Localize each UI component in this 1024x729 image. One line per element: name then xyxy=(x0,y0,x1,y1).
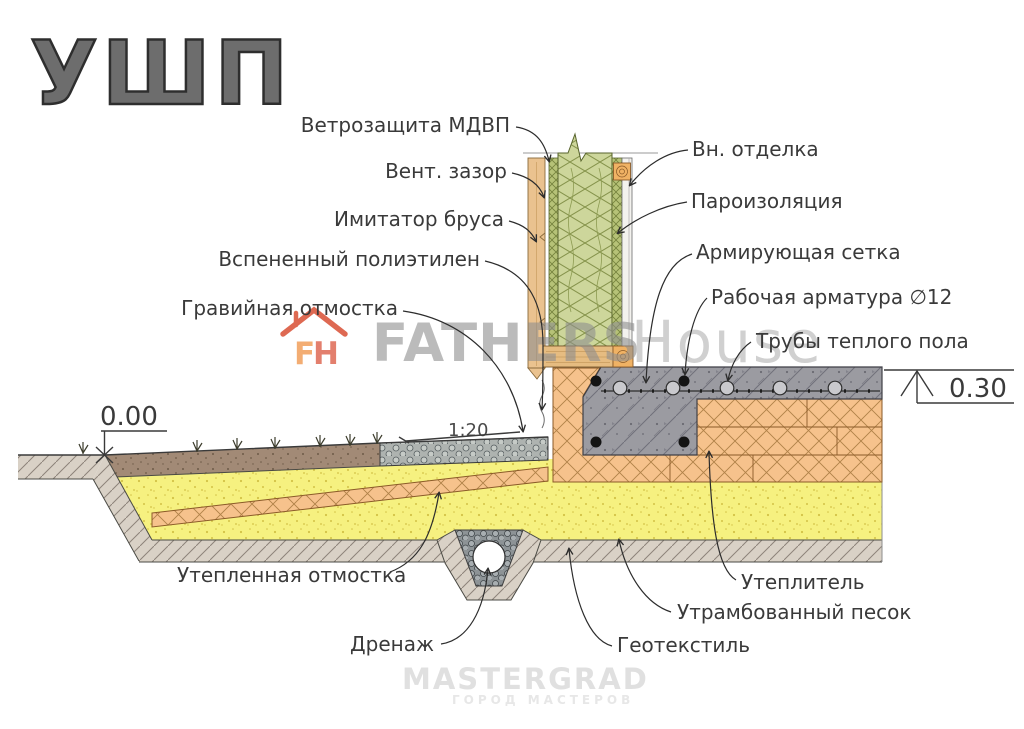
watermark-mastergrad: MASTERGRAD ГОРОД МАСТЕРОВ xyxy=(402,662,649,707)
label-compacted-sand: Утрамбованный песок xyxy=(677,600,911,624)
label-vapor-barrier: Пароизоляция xyxy=(691,189,843,213)
rebar-dot xyxy=(591,376,602,387)
floor-level-value: 0.30 xyxy=(949,374,1007,404)
label-insulated-apron: Утепленная отмостка xyxy=(177,563,406,587)
heating-pipe xyxy=(613,381,627,395)
label-reinforcing-mesh: Армирующая сетка xyxy=(696,240,901,264)
rebar-dot xyxy=(679,437,690,448)
ushp-foundation-diagram: УШП xyxy=(0,0,1024,729)
label-drainage: Дренаж xyxy=(350,632,434,656)
page-title: УШП xyxy=(30,22,292,125)
logo-letter-f: F xyxy=(294,336,315,372)
label-gravel-apron: Гравийная отмостка xyxy=(181,296,398,320)
rebar-dot xyxy=(591,437,602,448)
leader-interior-finish xyxy=(630,150,688,185)
label-insulation: Утеплитель xyxy=(741,570,865,594)
logo-letter-h: H xyxy=(313,336,339,372)
label-working-rebar: Рабочая арматура ∅12 xyxy=(711,285,952,309)
label-interior-finish: Вн. отделка xyxy=(692,137,819,161)
heating-pipe xyxy=(666,381,680,395)
watermark-fathers-text: FATHERS xyxy=(372,313,642,374)
rebar-dot xyxy=(679,376,690,387)
heating-pipe xyxy=(828,381,842,395)
label-wind-protection: Ветрозащита МДВП xyxy=(301,113,510,137)
watermark-mastergrad-sub: ГОРОД МАСТЕРОВ xyxy=(452,693,634,707)
label-vent-gap: Вент. зазор xyxy=(385,159,507,183)
label-geotextile: Геотекстиль xyxy=(617,633,750,657)
wall-batten xyxy=(614,163,631,180)
level-mark-floor: 0.30 xyxy=(884,370,1014,404)
ground-level-value: 0.00 xyxy=(100,402,158,432)
soil-band-left xyxy=(18,455,105,479)
watermark-mastergrad-text: MASTERGRAD xyxy=(402,662,649,696)
heating-pipe xyxy=(720,381,734,395)
leader-wind-protection xyxy=(516,127,549,161)
heating-pipe xyxy=(773,381,787,395)
label-foamed-polyethylene: Вспененный полиэтилен xyxy=(218,247,480,271)
label-timber-imitation: Имитатор бруса xyxy=(334,207,504,231)
label-heating-pipes: Трубы теплого пола xyxy=(755,329,969,353)
leader-geotextile xyxy=(569,549,612,646)
drain-pipe xyxy=(473,541,505,573)
slab-section xyxy=(553,367,882,482)
